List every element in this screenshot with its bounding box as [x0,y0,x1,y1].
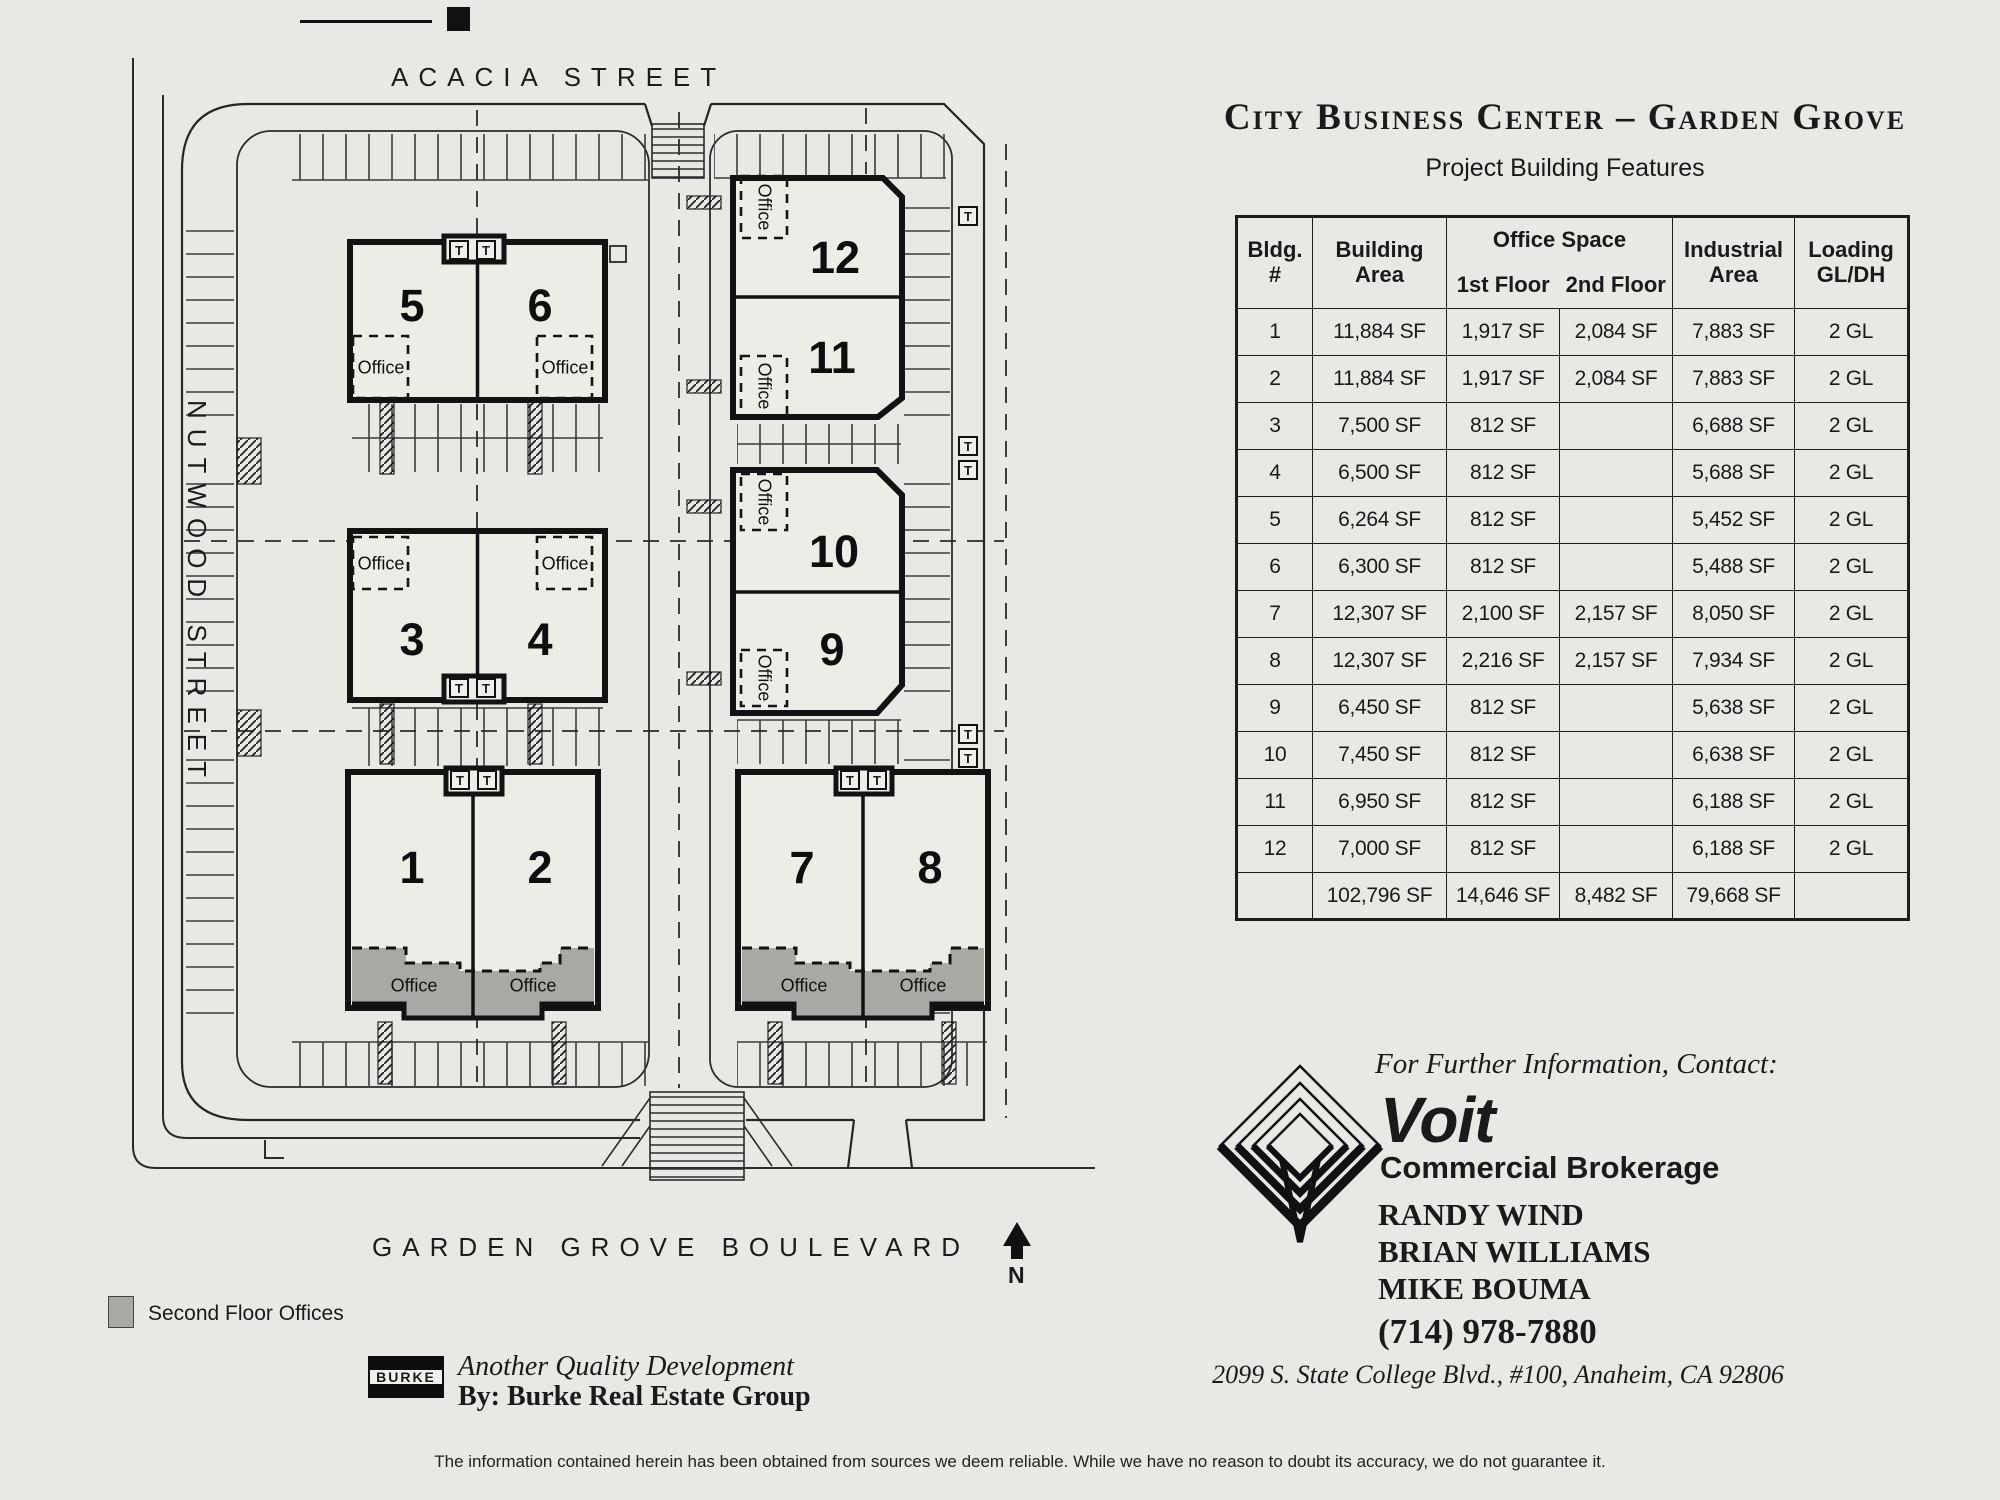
cell: 11,884 SF [1313,309,1447,356]
transformer-box: T [958,206,978,226]
cell [1795,873,1909,920]
cell: 2 GL [1795,591,1909,638]
transformer-box: T [840,770,860,790]
contact-phone: (714) 978-7880 [1378,1312,1597,1352]
cell: 79,668 SF [1673,873,1795,920]
office-label-2: Office [510,976,557,997]
cell: 5,688 SF [1673,450,1795,497]
cell: 2 GL [1795,826,1909,873]
office-label-4: Office [542,554,589,575]
cell [1560,826,1673,873]
building-features-table: Bldg. # Building Area Office Space Indus… [1235,215,1910,921]
cell: 14,646 SF [1447,873,1560,920]
cell: 3 [1237,403,1313,450]
cell [1560,779,1673,826]
cell: 2 GL [1795,309,1909,356]
cell: 1,917 SF [1447,309,1560,356]
table-row: 712,307 SF2,100 SF2,157 SF8,050 SF2 GL [1237,591,1909,638]
cell: 6,264 SF [1313,497,1447,544]
cell: 5,452 SF [1673,497,1795,544]
cell: 12 [1237,826,1313,873]
agent-name: RANDY WIND [1378,1196,1584,1233]
cell: 7 [1237,591,1313,638]
cell: 6,188 SF [1673,826,1795,873]
office-label-5: Office [358,358,405,379]
table-row: 812,307 SF2,216 SF2,157 SF7,934 SF2 GL [1237,638,1909,685]
office-label-11: Office [754,363,775,410]
cell: 5 [1237,497,1313,544]
table-row: 46,500 SF812 SF5,688 SF2 GL [1237,450,1909,497]
cell: 2 GL [1795,732,1909,779]
cell: 12,307 SF [1313,638,1447,685]
transformer-box: T [958,460,978,480]
cell: 7,450 SF [1313,732,1447,779]
col-header-office-space: Office Space [1447,217,1673,263]
col-header-loading: Loading GL/DH [1795,217,1909,309]
cell: 7,000 SF [1313,826,1447,873]
cell: 7,934 SF [1673,638,1795,685]
legend-swatch [108,1296,134,1328]
building-5-number: 5 [399,280,424,332]
building-6-number: 6 [527,280,552,332]
table-row: 111,884 SF1,917 SF2,084 SF7,883 SF2 GL [1237,309,1909,356]
burke-logo-text: BURKE [368,1368,444,1386]
voit-logo-icon [1212,1062,1390,1262]
street-label-nutwood: NUTWOOD STREET [181,400,212,787]
cell: 2 GL [1795,685,1909,732]
cell: 812 SF [1447,403,1560,450]
cell: 10 [1237,732,1313,779]
cell: 102,796 SF [1313,873,1447,920]
cell: 812 SF [1447,779,1560,826]
cell: 2,084 SF [1560,356,1673,403]
cell: 2 [1237,356,1313,403]
agent-name: BRIAN WILLIAMS [1378,1233,1650,1270]
cell: 8,050 SF [1673,591,1795,638]
transformer-box: T [958,724,978,744]
building-4-number: 4 [527,614,552,666]
cell: 7,883 SF [1673,309,1795,356]
cell: 12,307 SF [1313,591,1447,638]
cell: 7,883 SF [1673,356,1795,403]
page-subtitle: Project Building Features [1175,154,1955,183]
building-7-number: 7 [789,842,814,894]
page-title: City Business Center – Garden Grove [1175,96,1955,139]
cell: 6,450 SF [1313,685,1447,732]
office-label-7: Office [781,976,828,997]
street-label-acacia: ACACIA STREET [391,62,726,93]
transformer-box: T [867,770,887,790]
building-12-number: 12 [810,232,860,284]
table-row: 96,450 SF812 SF5,638 SF2 GL [1237,685,1909,732]
cell: 2,157 SF [1560,591,1673,638]
cell: 1 [1237,309,1313,356]
col-header-area: Building Area [1313,217,1447,309]
developer-tagline: Another Quality Development [458,1352,794,1382]
voit-brand-subtitle: Commercial Brokerage [1380,1152,1719,1183]
cell: 812 SF [1447,732,1560,779]
table-row: 66,300 SF812 SF5,488 SF2 GL [1237,544,1909,591]
flyer-page: ACACIA STREET NUTWOOD STREET GARDEN GROV… [0,0,2000,1500]
col-header-2nd-floor: 2nd Floor [1560,263,1673,309]
contact-lead-in: For Further Information, Contact: [1375,1048,1778,1081]
cell: 11,884 SF [1313,356,1447,403]
transformer-box: T [449,240,469,260]
office-label-8: Office [900,976,947,997]
table-row: 211,884 SF1,917 SF2,084 SF7,883 SF2 GL [1237,356,1909,403]
burke-logo-bar [368,1386,444,1398]
transformer-box: T [476,678,496,698]
cell: 6,950 SF [1313,779,1447,826]
cell [1560,732,1673,779]
cell [1560,450,1673,497]
office-label-3: Office [358,554,405,575]
print-artifact [300,20,432,23]
office-label-12: Office [754,184,775,231]
col-header-industrial: Industrial Area [1673,217,1795,309]
cell: 2,084 SF [1560,309,1673,356]
building-9-number: 9 [819,624,844,676]
agent-name: MIKE BOUMA [1378,1270,1591,1307]
table-row: 116,950 SF812 SF6,188 SF2 GL [1237,779,1909,826]
building-3-number: 3 [399,614,424,666]
cell: 1,917 SF [1447,356,1560,403]
transformer-box: T [449,678,469,698]
cell: 812 SF [1447,497,1560,544]
table-totals-row: 102,796 SF14,646 SF8,482 SF79,668 SF [1237,873,1909,920]
table-row: 37,500 SF812 SF6,688 SF2 GL [1237,403,1909,450]
cell: 2 GL [1795,356,1909,403]
cell [1560,544,1673,591]
cell: 812 SF [1447,826,1560,873]
cell: 812 SF [1447,685,1560,732]
col-header-1st-floor: 1st Floor [1447,263,1560,309]
cell: 5,638 SF [1673,685,1795,732]
office-label-9: Office [754,655,775,702]
burke-logo-icon: BURKE [368,1356,444,1402]
cell [1237,873,1313,920]
north-label: N [1008,1262,1025,1289]
cell: 5,488 SF [1673,544,1795,591]
cell: 8,482 SF [1560,873,1673,920]
transformer-box: T [477,770,497,790]
street-label-garden-grove: GARDEN GROVE BOULEVARD [372,1232,970,1263]
building-11-number: 11 [808,332,856,384]
building-2-number: 2 [527,842,552,894]
cell: 2 GL [1795,638,1909,685]
transformer-box: T [476,240,496,260]
table-row: 127,000 SF812 SF6,188 SF2 GL [1237,826,1909,873]
office-label-1: Office [391,976,438,997]
office-label-6: Office [542,358,589,379]
cell [1560,685,1673,732]
cell: 2 GL [1795,497,1909,544]
contact-address: 2099 S. State College Blvd., #100, Anahe… [1178,1360,1818,1390]
transformer-box: T [958,436,978,456]
office-label-10: Office [754,479,775,526]
col-header-bldg: Bldg. # [1237,217,1313,309]
legend-label: Second Floor Offices [148,1302,344,1326]
table-row: 56,264 SF812 SF5,452 SF2 GL [1237,497,1909,544]
cell: 11 [1237,779,1313,826]
cell: 812 SF [1447,544,1560,591]
cell: 6,500 SF [1313,450,1447,497]
cell: 2 GL [1795,450,1909,497]
cell: 2,216 SF [1447,638,1560,685]
cell: 6,300 SF [1313,544,1447,591]
cell: 2,157 SF [1560,638,1673,685]
building-1-number: 1 [399,842,424,894]
cell [1560,403,1673,450]
cell: 2 GL [1795,779,1909,826]
cell: 2 GL [1795,544,1909,591]
print-artifact [447,7,470,31]
cell: 6,188 SF [1673,779,1795,826]
cell: 7,500 SF [1313,403,1447,450]
transformer-box: T [958,748,978,768]
buildings [348,178,988,1018]
building-10-number: 10 [809,526,859,578]
cell: 2,100 SF [1447,591,1560,638]
cell: 4 [1237,450,1313,497]
cell: 6,688 SF [1673,403,1795,450]
voit-brand-name: Voit [1380,1088,1495,1152]
north-arrow-icon [1003,1222,1031,1259]
cell [1560,497,1673,544]
cell: 6,638 SF [1673,732,1795,779]
cell: 812 SF [1447,450,1560,497]
building-8-number: 8 [917,842,942,894]
table-row: 107,450 SF812 SF6,638 SF2 GL [1237,732,1909,779]
developer-byline: By: Burke Real Estate Group [458,1382,811,1412]
transformer-box: T [450,770,470,790]
cell: 6 [1237,544,1313,591]
cell: 2 GL [1795,403,1909,450]
burke-logo-bar [368,1356,444,1368]
cell: 9 [1237,685,1313,732]
cell: 8 [1237,638,1313,685]
disclaimer-text: The information contained herein has bee… [20,1452,2000,1472]
table-header-row: Bldg. # Building Area Office Space Indus… [1237,217,1909,263]
